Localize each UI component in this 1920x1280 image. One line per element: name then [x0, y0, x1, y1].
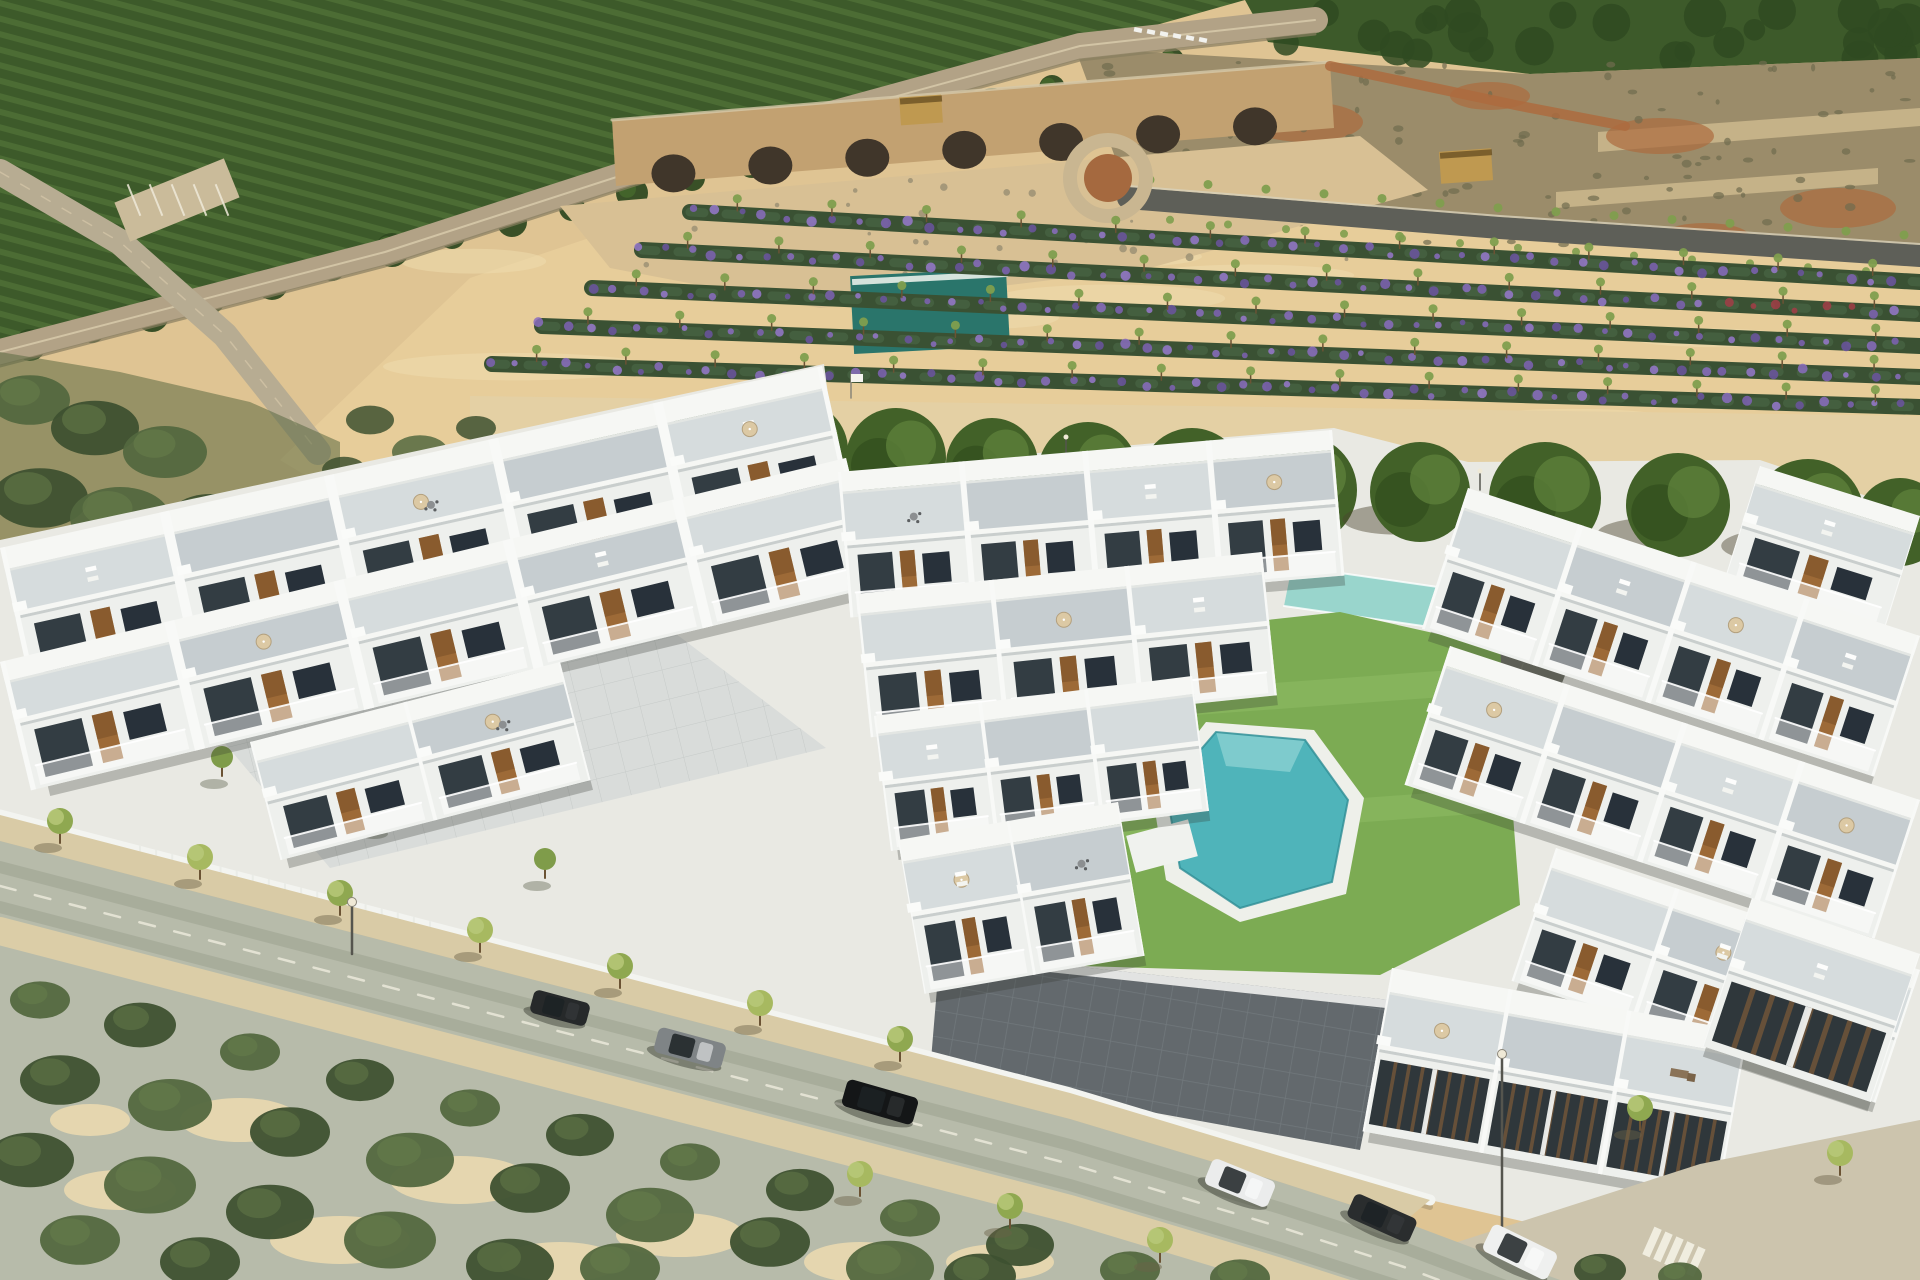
aerial-render-residential-complex: [0, 0, 1920, 1280]
scene-svg: [0, 0, 1920, 1280]
